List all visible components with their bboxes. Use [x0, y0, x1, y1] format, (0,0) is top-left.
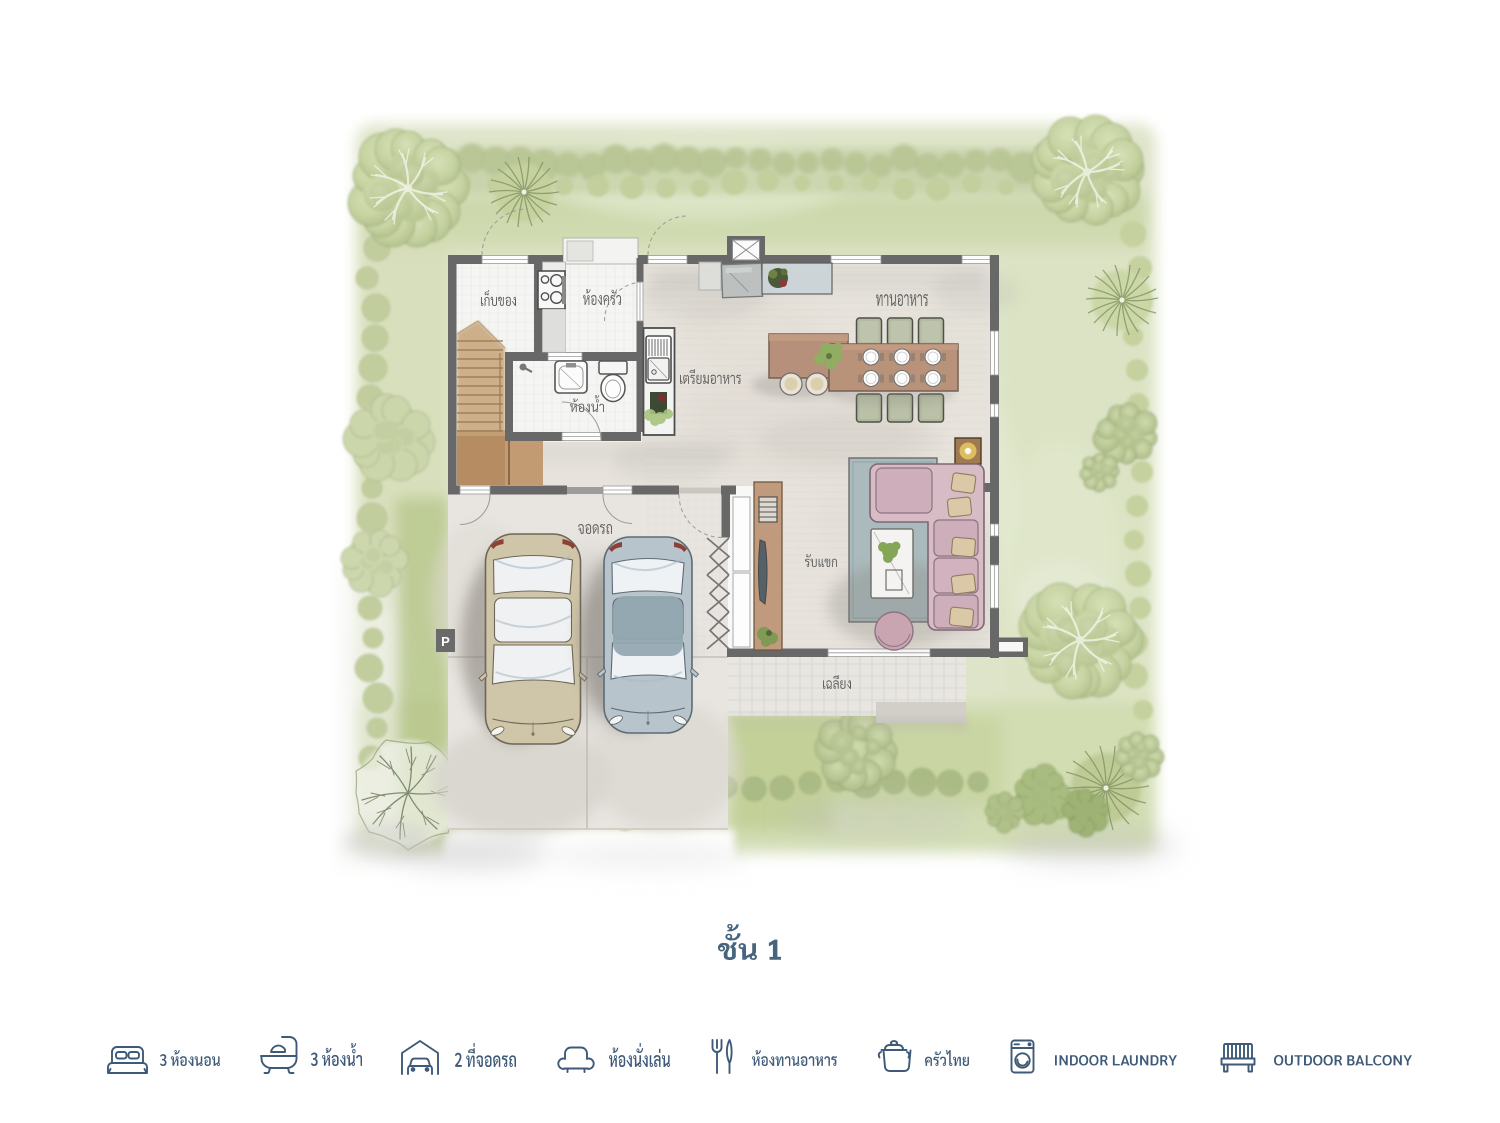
svg-text:P: P	[441, 634, 450, 649]
